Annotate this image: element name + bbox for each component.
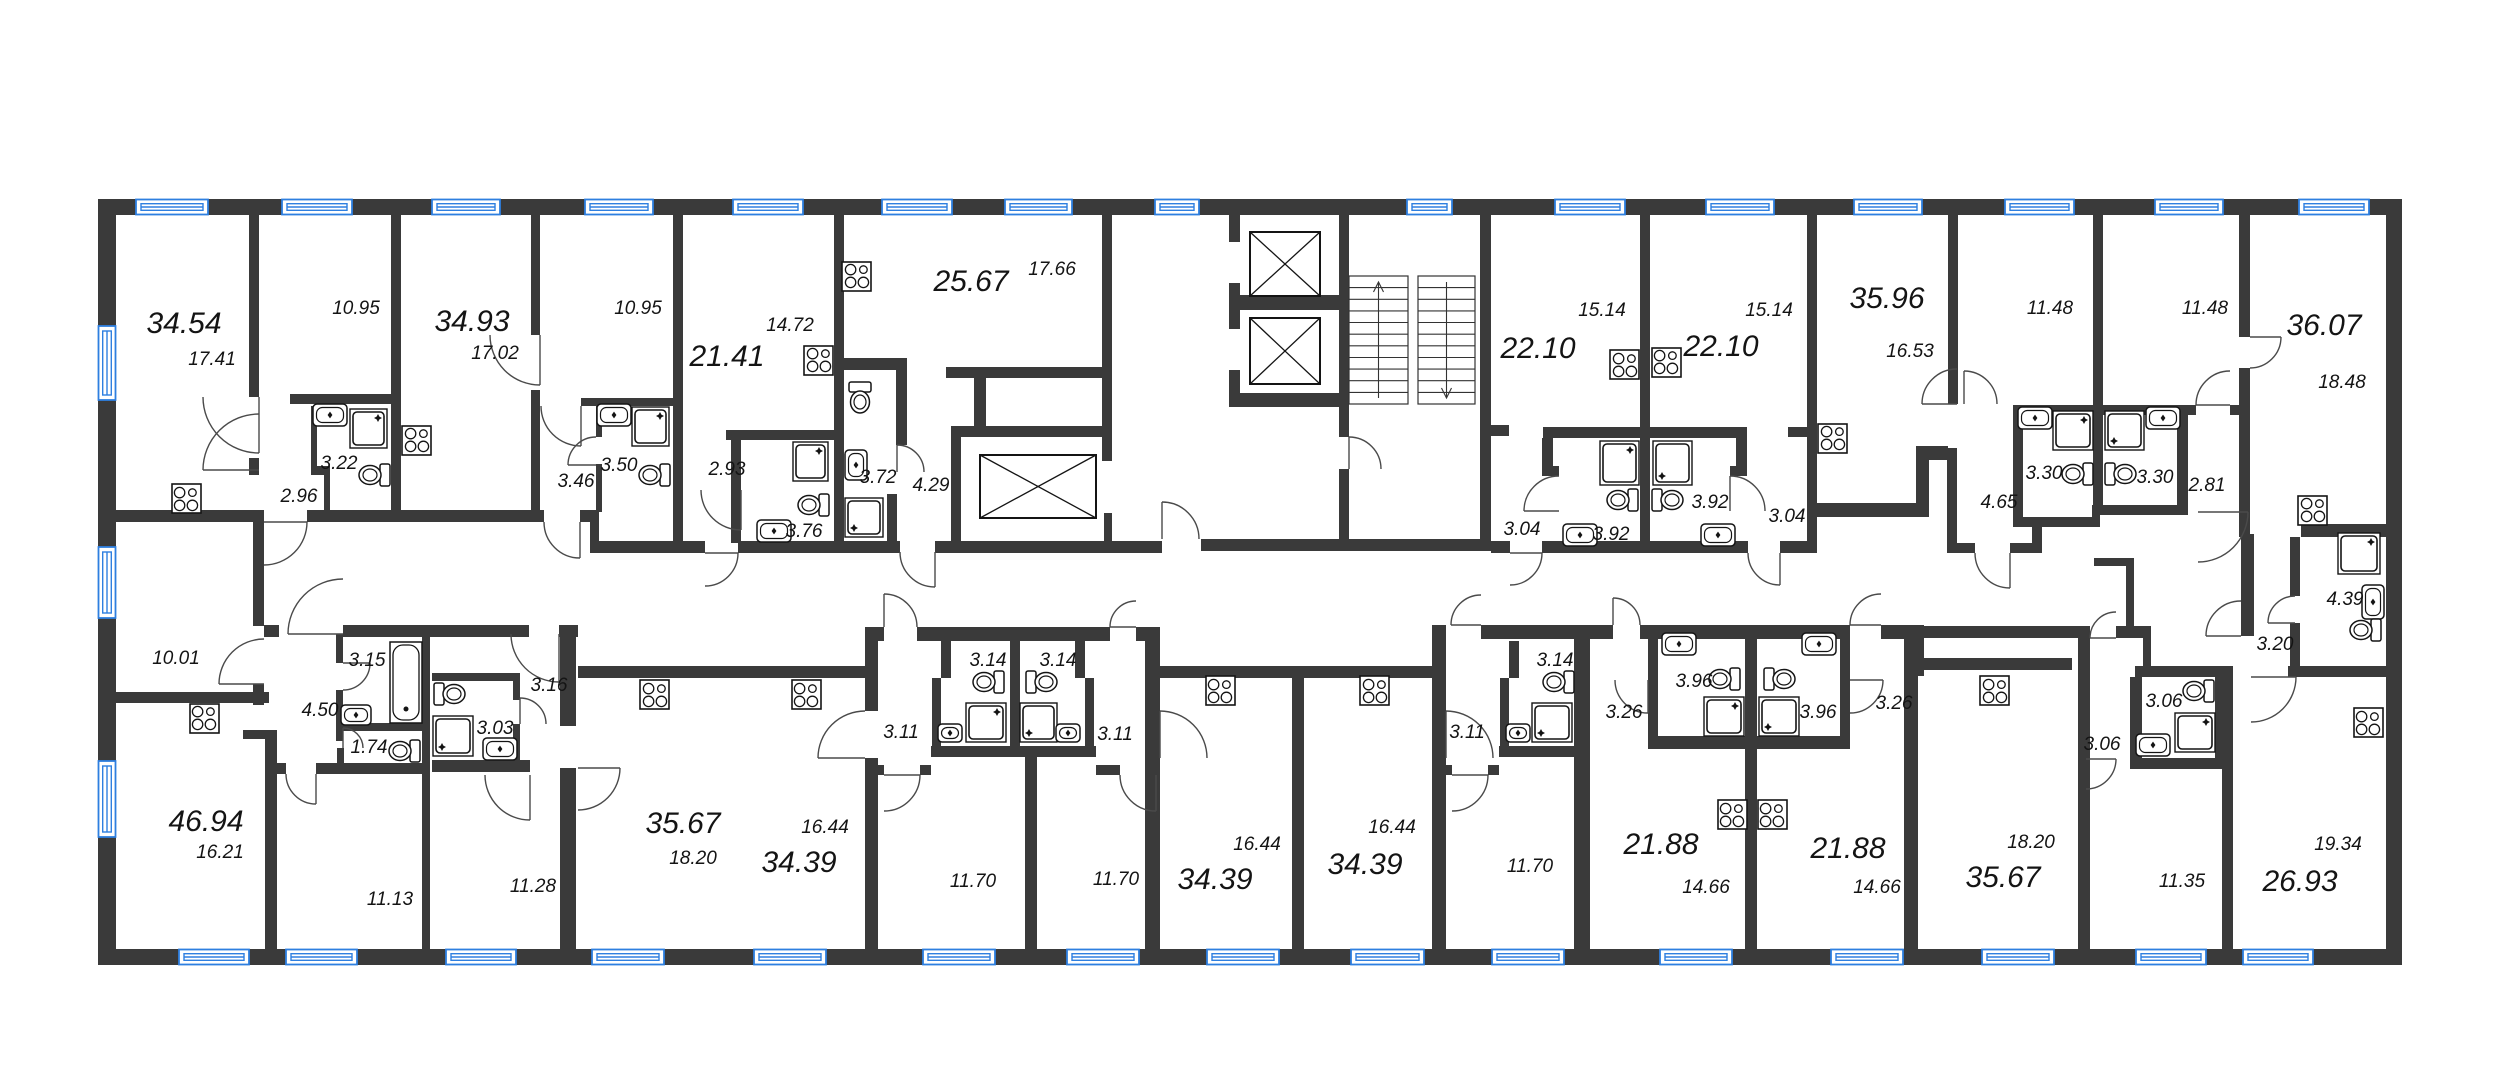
- svg-text:2.93: 2.93: [708, 459, 746, 480]
- svg-text:2.96: 2.96: [280, 486, 318, 507]
- svg-text:34.93: 34.93: [434, 305, 509, 338]
- svg-text:34.54: 34.54: [146, 307, 221, 340]
- svg-text:11.70: 11.70: [1507, 856, 1554, 877]
- svg-text:10.01: 10.01: [152, 648, 200, 669]
- svg-text:18.48: 18.48: [2318, 372, 2366, 393]
- svg-text:11.35: 11.35: [2159, 871, 2206, 892]
- svg-text:14.72: 14.72: [766, 315, 814, 336]
- svg-text:22.10: 22.10: [1682, 330, 1758, 363]
- svg-text:2.81: 2.81: [2188, 475, 2226, 496]
- svg-text:3.26: 3.26: [1876, 693, 1913, 714]
- svg-text:3.14: 3.14: [970, 650, 1007, 671]
- svg-text:15.14: 15.14: [1745, 300, 1793, 321]
- svg-text:34.39: 34.39: [1327, 848, 1402, 881]
- svg-text:19.34: 19.34: [2314, 834, 2362, 855]
- svg-text:3.11: 3.11: [883, 722, 919, 743]
- svg-text:36.07: 36.07: [2286, 309, 2362, 342]
- svg-text:3.15: 3.15: [349, 650, 386, 671]
- svg-text:10.95: 10.95: [614, 298, 662, 319]
- svg-text:11.48: 11.48: [2027, 298, 2074, 319]
- svg-text:4.29: 4.29: [913, 475, 950, 496]
- svg-text:3.26: 3.26: [1606, 702, 1643, 723]
- svg-text:3.22: 3.22: [321, 453, 358, 474]
- svg-text:3.76: 3.76: [786, 521, 823, 542]
- svg-text:3.11: 3.11: [1449, 722, 1485, 743]
- svg-text:3.30: 3.30: [2137, 467, 2174, 488]
- svg-text:15.14: 15.14: [1578, 300, 1626, 321]
- svg-text:14.66: 14.66: [1853, 877, 1901, 898]
- svg-text:11.13: 11.13: [367, 889, 414, 910]
- svg-text:35.67: 35.67: [1965, 861, 2041, 894]
- svg-text:3.92: 3.92: [1692, 492, 1729, 513]
- svg-text:34.39: 34.39: [761, 846, 836, 879]
- svg-text:18.20: 18.20: [2007, 832, 2055, 853]
- svg-text:3.03: 3.03: [477, 718, 514, 739]
- svg-text:3.50: 3.50: [601, 455, 638, 476]
- svg-text:3.04: 3.04: [1504, 519, 1541, 540]
- svg-text:11.70: 11.70: [1093, 869, 1140, 890]
- svg-text:35.96: 35.96: [1849, 282, 1924, 315]
- svg-text:16.53: 16.53: [1886, 341, 1934, 362]
- svg-text:17.41: 17.41: [188, 349, 236, 370]
- svg-text:3.14: 3.14: [1537, 650, 1574, 671]
- svg-text:16.44: 16.44: [1368, 817, 1416, 838]
- svg-text:3.96: 3.96: [1800, 702, 1837, 723]
- svg-text:17.66: 17.66: [1028, 259, 1076, 280]
- svg-text:18.20: 18.20: [669, 848, 717, 869]
- svg-text:4.39: 4.39: [2327, 589, 2364, 610]
- svg-text:26.93: 26.93: [2261, 865, 2337, 898]
- svg-text:3.72: 3.72: [860, 467, 897, 488]
- svg-text:17.02: 17.02: [471, 343, 519, 364]
- svg-text:3.96: 3.96: [1676, 671, 1713, 692]
- svg-text:11.70: 11.70: [950, 871, 997, 892]
- svg-text:16.21: 16.21: [196, 842, 244, 863]
- svg-text:16.44: 16.44: [1233, 834, 1281, 855]
- svg-text:3.04: 3.04: [1769, 506, 1806, 527]
- svg-text:3.92: 3.92: [1593, 524, 1630, 545]
- svg-text:1.74: 1.74: [351, 737, 388, 758]
- svg-text:3.06: 3.06: [2084, 734, 2121, 755]
- svg-text:11.28: 11.28: [510, 876, 557, 897]
- svg-text:11.48: 11.48: [2182, 298, 2229, 319]
- svg-text:3.30: 3.30: [2026, 463, 2063, 484]
- svg-text:35.67: 35.67: [645, 807, 721, 840]
- svg-text:10.95: 10.95: [332, 298, 380, 319]
- svg-text:14.66: 14.66: [1682, 877, 1730, 898]
- svg-text:4.50: 4.50: [302, 700, 339, 721]
- svg-text:21.41: 21.41: [688, 340, 764, 373]
- svg-text:4.65: 4.65: [1981, 492, 2018, 513]
- svg-text:46.94: 46.94: [168, 805, 243, 838]
- svg-text:21.88: 21.88: [1622, 828, 1698, 861]
- svg-text:34.39: 34.39: [1177, 863, 1252, 896]
- svg-text:21.88: 21.88: [1809, 832, 1885, 865]
- svg-text:3.16: 3.16: [531, 675, 568, 696]
- svg-text:3.20: 3.20: [2257, 634, 2294, 655]
- svg-text:16.44: 16.44: [801, 817, 849, 838]
- svg-text:3.06: 3.06: [2146, 691, 2183, 712]
- svg-text:3.14: 3.14: [1040, 650, 1077, 671]
- svg-text:22.10: 22.10: [1499, 332, 1575, 365]
- svg-text:25.67: 25.67: [932, 265, 1009, 298]
- svg-text:3.11: 3.11: [1097, 724, 1133, 745]
- svg-text:3.46: 3.46: [558, 471, 595, 492]
